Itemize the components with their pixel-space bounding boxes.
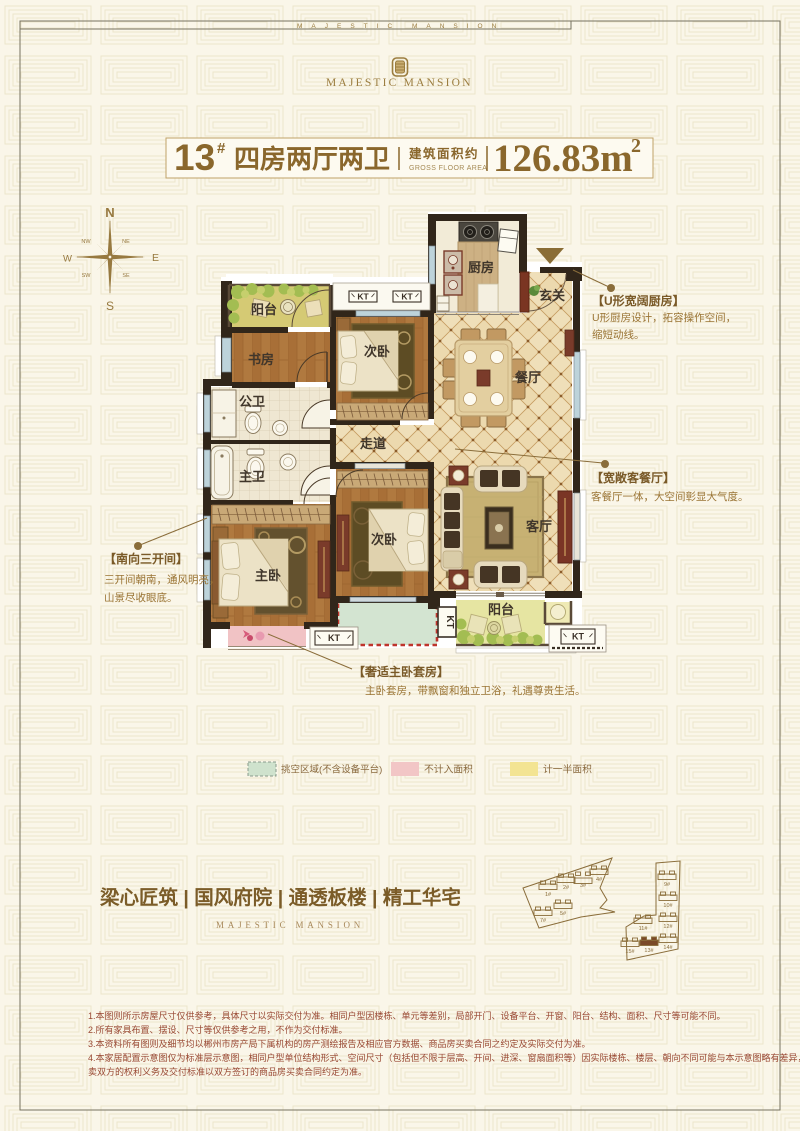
svg-text:2#: 2# (563, 885, 570, 891)
svg-text:【奢适主卧套房】: 【奢适主卧套房】 (353, 664, 449, 679)
svg-text:次卧: 次卧 (371, 532, 397, 547)
svg-text:4#: 4# (596, 877, 603, 883)
svg-text:公卫: 公卫 (239, 394, 265, 409)
svg-text:挑空区域(不含设备平台): 挑空区域(不含设备平台) (281, 764, 382, 776)
svg-text:2: 2 (631, 135, 641, 157)
svg-text:10#: 10# (663, 903, 673, 909)
svg-text:KT: KT (572, 632, 584, 642)
svg-text:GROSS FLOOR AREA: GROSS FLOOR AREA (409, 165, 487, 172)
svg-text:12#: 12# (663, 924, 673, 930)
svg-text:13#: 13# (644, 948, 654, 954)
svg-text:【宽敞客餐厅】: 【宽敞客餐厅】 (591, 470, 675, 485)
svg-text:126.83m: 126.83m (493, 137, 633, 180)
svg-text:7#: 7# (540, 918, 547, 924)
svg-text:E: E (152, 252, 159, 264)
svg-text:卖双方的权利义务及交付标准以双方签订的商品房买卖合同约定为准: 卖双方的权利义务及交付标准以双方签订的商品房买卖合同约定为准。 (88, 1066, 367, 1077)
svg-text:4.本家居配置示意图仅为标准层示意图，相同户型单位结构形式、: 4.本家居配置示意图仅为标准层示意图，相同户型单位结构形式、空间尺寸（包括但不限… (88, 1052, 800, 1063)
svg-text:阳台: 阳台 (488, 602, 514, 617)
svg-text:厨房: 厨房 (468, 260, 494, 275)
svg-text:计一半面积: 计一半面积 (543, 763, 592, 776)
svg-text:5#: 5# (560, 911, 567, 917)
svg-text:S: S (106, 299, 114, 313)
svg-text:建筑面积约: 建筑面积约 (409, 146, 479, 161)
svg-text:缩短动线。: 缩短动线。 (592, 328, 645, 341)
svg-text:主卧: 主卧 (255, 568, 281, 583)
svg-text:14#: 14# (663, 945, 673, 951)
svg-text:KT: KT (357, 292, 369, 302)
svg-text:NE: NE (122, 239, 130, 245)
svg-text:三开间朝南，通风明亮，: 三开间朝南，通风明亮， (104, 573, 220, 586)
svg-text:1#: 1# (545, 892, 552, 898)
svg-text:走道: 走道 (360, 436, 386, 451)
svg-text:1.本图则所示房屋尺寸仅供参考，具体尺寸以实际交付为准。相同: 1.本图则所示房屋尺寸仅供参考，具体尺寸以实际交付为准。相同户型因楼栋、单元等差… (88, 1010, 726, 1021)
svg-text:客餐厅一体，大空间彰显大气度。: 客餐厅一体，大空间彰显大气度。 (591, 490, 749, 503)
svg-text:玄关: 玄关 (539, 288, 565, 303)
svg-text:N: N (105, 205, 114, 220)
svg-text:SW: SW (82, 273, 92, 279)
svg-text:餐厅: 餐厅 (514, 370, 541, 385)
svg-text:NW: NW (81, 239, 91, 245)
svg-text:SE: SE (122, 273, 130, 279)
svg-text:KT: KT (328, 633, 340, 643)
svg-text:MAJESTIC MANSION: MAJESTIC MANSION (297, 23, 505, 30)
svg-text:3#: 3# (580, 883, 587, 889)
svg-text:KT: KT (444, 615, 455, 628)
svg-text:阳台: 阳台 (251, 302, 277, 317)
svg-text:主卧套房，带飘窗和独立卫浴，礼遇尊贵生活。: 主卧套房，带飘窗和独立卫浴，礼遇尊贵生活。 (365, 684, 586, 697)
svg-text:13: 13 (174, 137, 215, 178)
svg-text:3.本资料所有图则及细节均以郴州市房产局下属机构的房产测绘报: 3.本资料所有图则及细节均以郴州市房产局下属机构的房产测绘报告及相应官方数据、商… (88, 1038, 591, 1049)
svg-text:W: W (63, 254, 72, 265)
svg-text:MAJESTIC MANSION: MAJESTIC MANSION (326, 77, 473, 89)
svg-text:主卫: 主卫 (239, 469, 265, 484)
svg-text:U形厨房设计，拓容操作空间，: U形厨房设计，拓容操作空间， (592, 311, 736, 324)
svg-text:山景尽收眼底。: 山景尽收眼底。 (104, 591, 178, 604)
svg-text:梁心匠筑 | 国风府院 | 通透板楼 | 精工华宅: 梁心匠筑 | 国风府院 | 通透板楼 | 精工华宅 (99, 886, 461, 909)
svg-text:9#: 9# (664, 882, 671, 888)
svg-text:11#: 11# (639, 926, 649, 932)
svg-text:四房两厅两卫: 四房两厅两卫 (234, 144, 390, 174)
svg-text:KT: KT (401, 292, 413, 302)
svg-text:#: # (217, 140, 226, 157)
svg-text:2.所有家具布置、摆设、尺寸等仅供参考之用，不作为交付标准。: 2.所有家具布置、摆设、尺寸等仅供参考之用，不作为交付标准。 (88, 1024, 348, 1035)
svg-text:15#: 15# (625, 949, 635, 955)
svg-text:【U形宽阔厨房】: 【U形宽阔厨房】 (592, 293, 685, 308)
svg-text:书房: 书房 (248, 352, 274, 367)
svg-text:不计入面积: 不计入面积 (424, 763, 473, 776)
svg-text:【南向三开间】: 【南向三开间】 (104, 551, 188, 566)
svg-text:MAJESTIC MANSION: MAJESTIC MANSION (216, 920, 364, 930)
svg-text:客厅: 客厅 (526, 519, 552, 534)
svg-text:次卧: 次卧 (364, 344, 390, 359)
